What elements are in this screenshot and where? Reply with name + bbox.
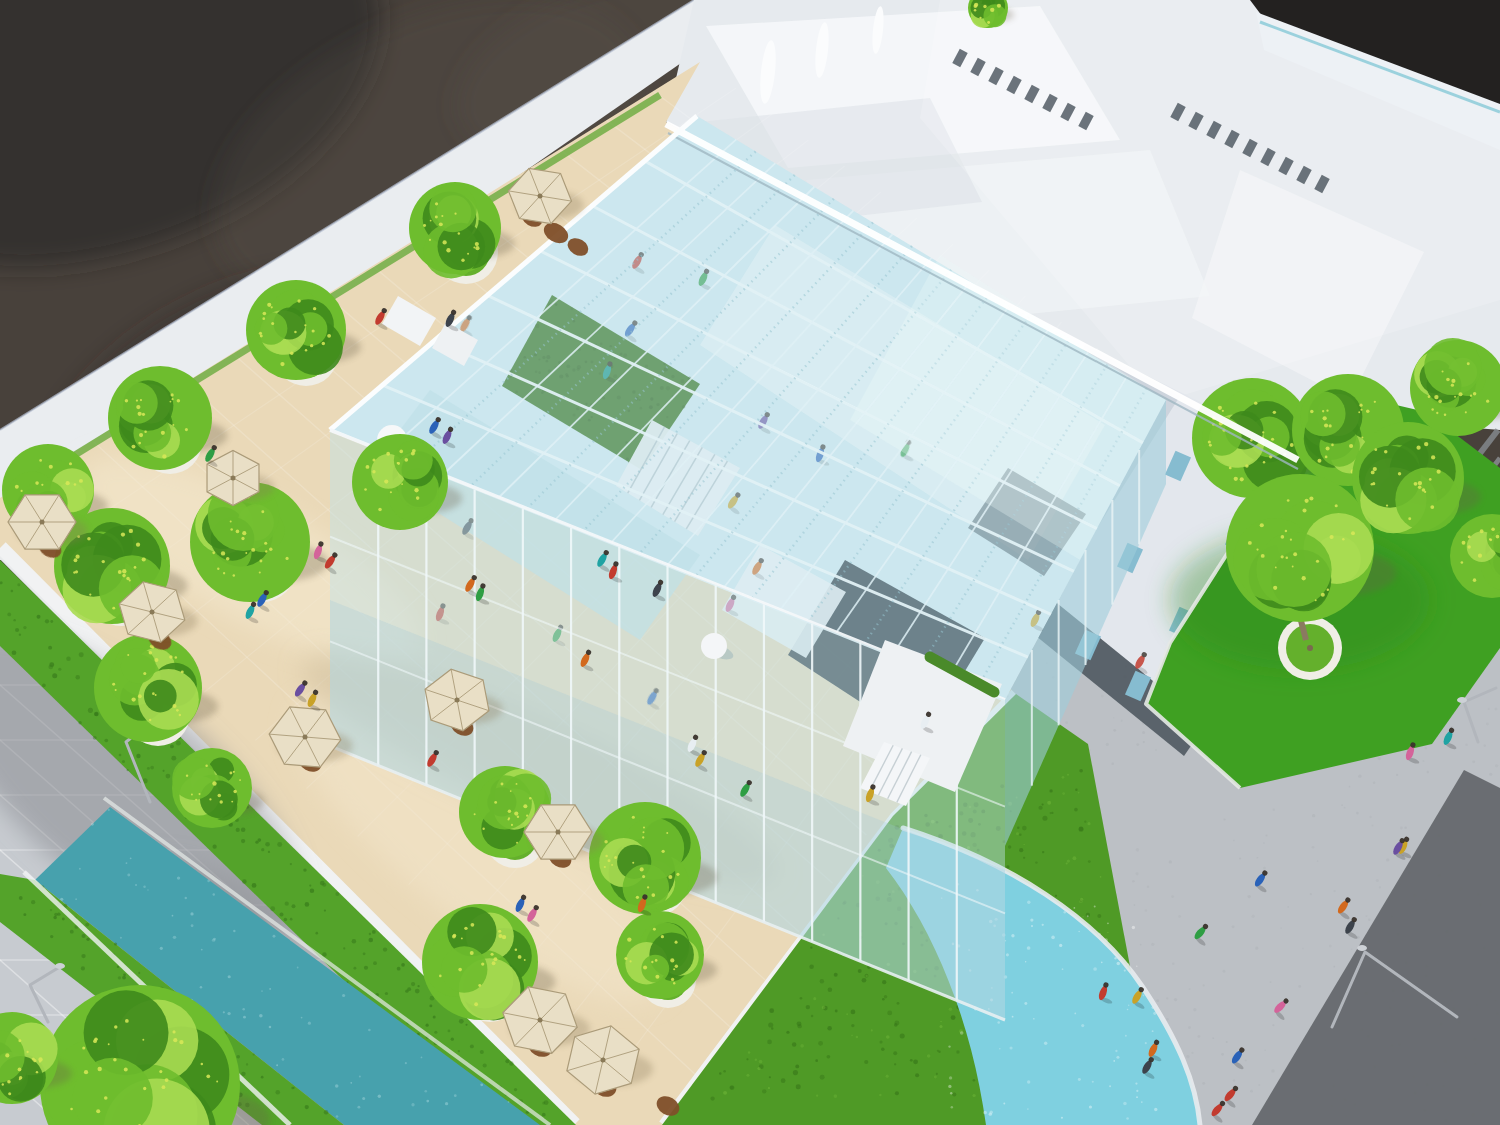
tree-ring-east [1278,616,1342,680]
model-scene-canvas [0,0,1500,1125]
roof-vent-2 [701,633,727,659]
architectural-model-photo [0,0,1500,1125]
